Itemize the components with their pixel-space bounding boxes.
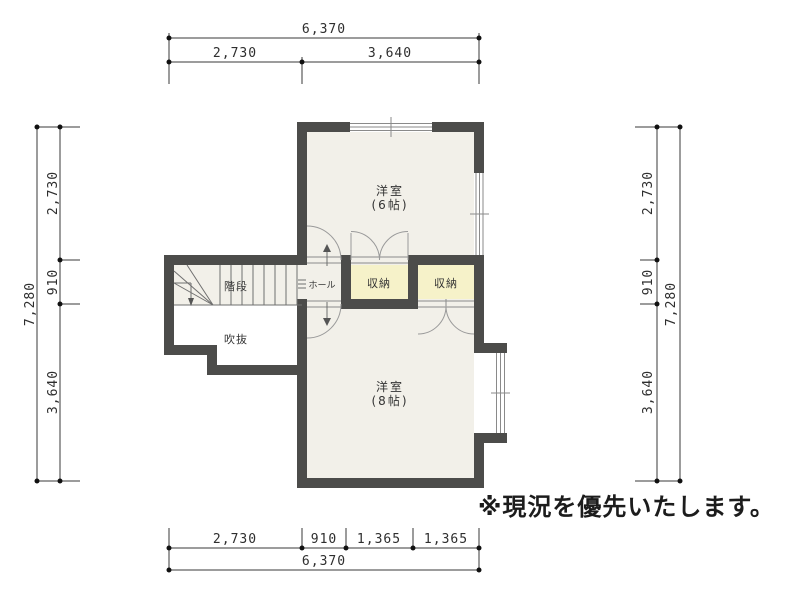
wall-left-exterior bbox=[164, 255, 174, 355]
dimension-left: 2,730 910 3,640 7,280 bbox=[23, 125, 80, 484]
dim-left-seg1: 2,730 bbox=[46, 171, 61, 215]
label-closet-left: 収納 bbox=[367, 277, 391, 290]
dim-bottom-seg2: 910 bbox=[311, 532, 337, 547]
wall-bay-stub-bottom bbox=[474, 433, 507, 443]
wall-stairs-top bbox=[164, 255, 307, 265]
label-stairs: 階段 bbox=[224, 279, 248, 293]
dimension-top: 6,370 2,730 3,640 bbox=[167, 22, 482, 84]
label-western6-name: 洋室 bbox=[376, 183, 404, 198]
wall-8jo-left bbox=[297, 299, 307, 488]
wall-6jo-left bbox=[297, 122, 307, 265]
dim-right-seg1: 2,730 bbox=[641, 171, 656, 215]
label-western6-size: (6帖) bbox=[372, 197, 409, 212]
dim-bottom-seg1: 2,730 bbox=[213, 532, 257, 547]
wall-right-middle bbox=[474, 255, 484, 348]
label-void: 吹抜 bbox=[224, 332, 248, 346]
dim-top-total: 6,370 bbox=[302, 22, 346, 37]
wall-8jo-bottom bbox=[297, 478, 484, 488]
dim-left-seg2: 910 bbox=[46, 269, 61, 295]
floor-plan-page: 洋室 (6帖) 洋室 (8帖) 収納 収納 階段 ホール 吹抜 6,370 2,… bbox=[0, 0, 800, 600]
dimension-right: 2,730 910 3,640 7,280 bbox=[635, 125, 683, 484]
priority-note: ※現況を優先いたします。 bbox=[478, 493, 775, 521]
wall-closet2-top bbox=[418, 255, 474, 265]
dim-bottom-total: 6,370 bbox=[302, 554, 346, 569]
label-western8-name: 洋室 bbox=[376, 379, 404, 394]
label-western8-size: (8帖) bbox=[372, 393, 409, 408]
dim-right-total: 7,280 bbox=[664, 282, 679, 326]
label-closet-right: 収納 bbox=[434, 277, 458, 290]
dim-right-seg3: 3,640 bbox=[641, 370, 656, 414]
dim-left-total: 7,280 bbox=[23, 282, 38, 326]
dim-bottom-seg4: 1,365 bbox=[424, 532, 468, 547]
dim-right-seg2: 910 bbox=[641, 269, 656, 295]
dim-top-seg1: 2,730 bbox=[213, 46, 257, 61]
dim-top-seg2: 3,640 bbox=[368, 46, 412, 61]
dimension-bottom: 2,730 910 1,365 1,365 6,370 bbox=[167, 528, 482, 573]
wall-closet1-bottom bbox=[341, 299, 418, 309]
window-8jo-bay bbox=[491, 353, 510, 433]
wall-bay-stub-top bbox=[474, 343, 507, 353]
label-hall: ホール bbox=[308, 280, 335, 291]
wall-void-step-c bbox=[207, 365, 302, 375]
dim-bottom-seg3: 1,365 bbox=[357, 532, 401, 547]
floor-plan-drawing: 洋室 (6帖) 洋室 (8帖) 収納 収納 階段 ホール 吹抜 6,370 2,… bbox=[0, 0, 800, 600]
wall-6jo-right-upper bbox=[474, 122, 484, 173]
dim-left-seg3: 3,640 bbox=[46, 370, 61, 414]
